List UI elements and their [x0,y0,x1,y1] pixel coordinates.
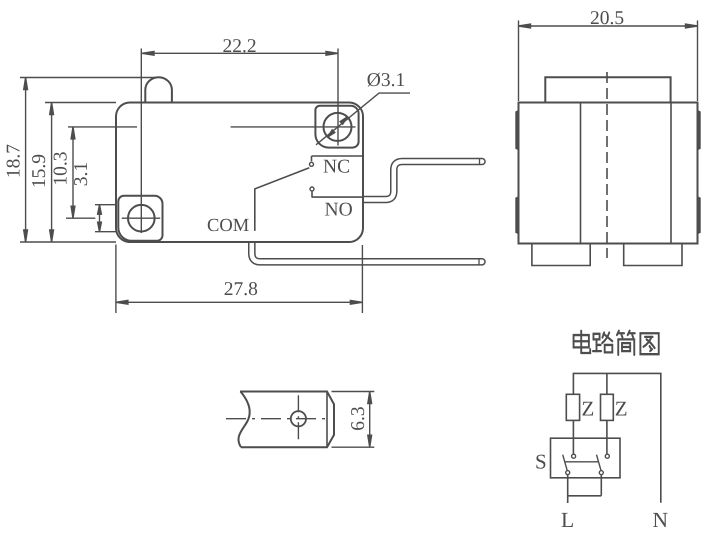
svg-text:6.3: 6.3 [348,406,369,430]
svg-text:15.9: 15.9 [29,154,50,188]
svg-text:COM: COM [207,216,249,236]
svg-text:3.1: 3.1 [71,162,92,186]
svg-text:22.2: 22.2 [222,36,256,57]
svg-text:20.5: 20.5 [590,8,624,29]
svg-text:18.7: 18.7 [4,144,25,178]
svg-text:Z: Z [615,397,628,421]
svg-text:NC: NC [323,157,350,178]
svg-text:10.3: 10.3 [51,151,72,185]
svg-text:Ø3.1: Ø3.1 [367,70,405,91]
svg-text:S: S [535,450,547,474]
svg-text:27.8: 27.8 [224,279,258,300]
svg-text:NO: NO [325,200,353,221]
svg-text:Z: Z [582,397,595,421]
svg-text:N: N [653,508,669,532]
svg-text:L: L [561,508,574,532]
